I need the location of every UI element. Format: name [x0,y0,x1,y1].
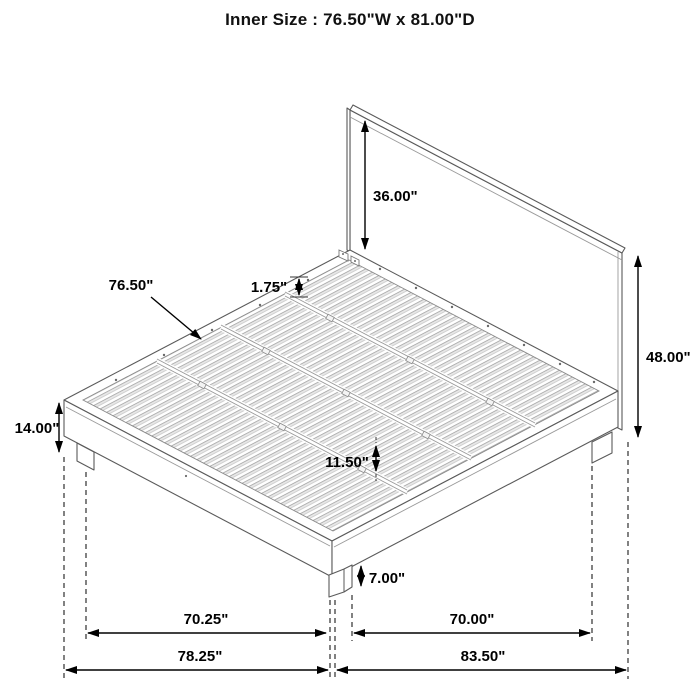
bed-dimension-diagram: 36.00" 48.00" 76.50" 1.75" 14.00" 11.50" [0,0,700,700]
dim-48-label: 48.00" [646,349,691,366]
dim-48: 48.00" [638,256,691,437]
dim-11-50-label: 11.50" [325,454,369,471]
dim-70-25-label: 70.25" [184,611,229,628]
dim-70-00-label: 70.00" [450,611,495,628]
dim-78-25: 78.25" [66,648,328,670]
dim-70-25: 70.25" [88,611,326,633]
headboard-left-edge [347,108,350,252]
dim-1-75: 1.75" [251,277,308,297]
dim-36-label: 36.00" [373,188,418,205]
dim-83-50: 83.50" [337,648,626,670]
dim-83-50-label: 83.50" [461,648,506,665]
dim-1-75-label: 1.75" [251,279,287,296]
dim-14-label: 14.00" [15,420,60,437]
dim-76-50-label: 76.50" [109,277,154,294]
dim-76-50: 76.50" [109,277,201,339]
dim-14: 14.00" [15,403,60,452]
diagram-page: Inner Size : 76.50"W x 81.00"D [0,0,700,700]
dim-7: 7.00" [361,566,405,587]
dim-78-25-label: 78.25" [178,648,223,665]
dim-7-label: 7.00" [369,570,405,587]
dim-70-00: 70.00" [354,611,590,633]
